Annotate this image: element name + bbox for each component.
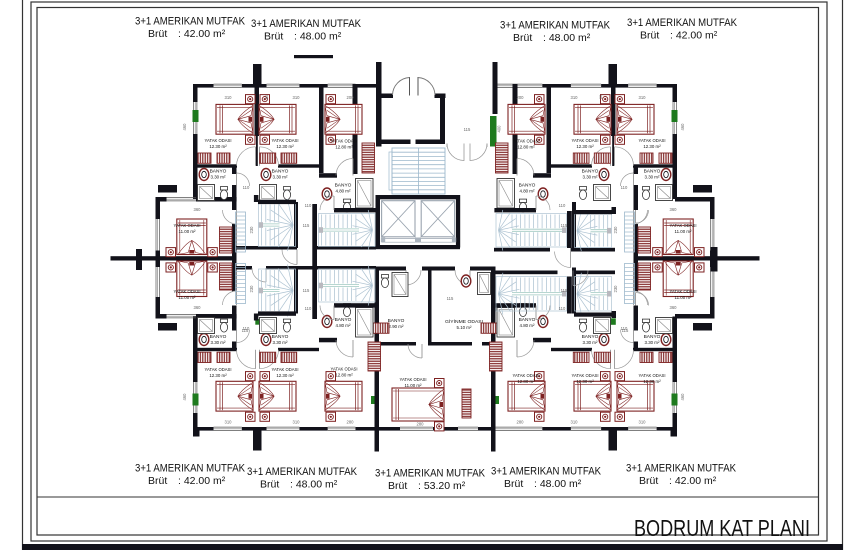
svg-text:12.80 m²: 12.80 m² — [517, 379, 535, 384]
svg-text:2.90 m²: 2.90 m² — [389, 324, 404, 329]
svg-text:110: 110 — [559, 306, 566, 311]
svg-text:11.00 m²: 11.00 m² — [178, 295, 196, 300]
svg-text:Brüt: Brüt — [148, 475, 167, 487]
svg-text:12.30 m²: 12.30 m² — [209, 373, 227, 378]
svg-text:12.30 m²: 12.30 m² — [643, 144, 661, 149]
svg-text:4.80 m²: 4.80 m² — [520, 323, 535, 328]
svg-text:310: 310 — [571, 420, 579, 425]
svg-text:GİYİNME ODASI: GİYİNME ODASI — [445, 318, 483, 325]
svg-text:12.30 m²: 12.30 m² — [209, 144, 227, 149]
svg-text:BODRUM KAT PLANI: BODRUM KAT PLANI — [634, 515, 810, 541]
svg-text:3+1 AMERIKAN MUTFAK: 3+1 AMERIKAN MUTFAK — [491, 466, 602, 478]
svg-text:115: 115 — [242, 328, 249, 333]
svg-text:4.80 m²: 4.80 m² — [336, 323, 351, 328]
svg-text:3+1 AMERIKAN MUTFAK: 3+1 AMERIKAN MUTFAK — [135, 463, 246, 475]
svg-text:115: 115 — [464, 127, 471, 132]
svg-text:3+1 AMERIKAN MUTFAK: 3+1 AMERIKAN MUTFAK — [135, 16, 246, 28]
svg-text:Brüt: Brüt — [513, 32, 532, 44]
svg-text:3+1 AMERIKAN MUTFAK: 3+1 AMERIKAN MUTFAK — [500, 20, 611, 32]
svg-text:3+1 AMERIKAN MUTFAK: 3+1 AMERIKAN MUTFAK — [247, 466, 358, 478]
svg-text:12.80 m²: 12.80 m² — [335, 145, 353, 150]
svg-text:280: 280 — [347, 420, 355, 425]
svg-text:310: 310 — [639, 95, 647, 100]
svg-text:360: 360 — [670, 207, 678, 212]
svg-text:: 53.20 m²: : 53.20 m² — [418, 480, 466, 492]
svg-text:115: 115 — [561, 288, 568, 293]
svg-text:400: 400 — [497, 125, 502, 133]
svg-text:Brüt: Brüt — [639, 475, 658, 487]
svg-text:3.30 m²: 3.30 m² — [273, 340, 288, 345]
svg-text:: 48.00 m²: : 48.00 m² — [290, 479, 338, 491]
svg-text:200: 200 — [517, 95, 525, 100]
svg-text:360: 360 — [194, 207, 202, 212]
svg-text:115: 115 — [622, 328, 629, 333]
svg-text:11.00 m²: 11.00 m² — [178, 229, 196, 234]
svg-text:11.00 m²: 11.00 m² — [674, 295, 692, 300]
svg-text:Brüt: Brüt — [504, 478, 523, 490]
svg-text:Brüt: Brüt — [388, 480, 407, 492]
svg-text:: 42.00 m²: : 42.00 m² — [178, 28, 226, 40]
svg-text:11.00 m²: 11.00 m² — [674, 229, 692, 234]
svg-text:3.30 m²: 3.30 m² — [273, 175, 288, 180]
svg-text:200: 200 — [347, 95, 355, 100]
svg-text:5.10 m²: 5.10 m² — [457, 325, 472, 330]
svg-text:360: 360 — [194, 305, 202, 310]
svg-text:12.30 m²: 12.30 m² — [643, 379, 661, 384]
svg-text:3+1 AMERIKAN MUTFAK: 3+1 AMERIKAN MUTFAK — [627, 17, 738, 29]
svg-text:310: 310 — [571, 95, 579, 100]
svg-text:110: 110 — [305, 203, 312, 208]
svg-text:12.80 m²: 12.80 m² — [517, 145, 535, 150]
svg-text:3.30 m²: 3.30 m² — [645, 340, 660, 345]
svg-text:310: 310 — [293, 420, 301, 425]
svg-text:: 48.00 m²: : 48.00 m² — [294, 31, 342, 43]
svg-text:3.30 m²: 3.30 m² — [583, 175, 598, 180]
svg-text:280: 280 — [417, 422, 425, 427]
svg-text:Brüt: Brüt — [260, 479, 279, 491]
svg-text:115: 115 — [561, 223, 568, 228]
svg-text:60: 60 — [265, 95, 269, 99]
svg-text:230: 230 — [613, 226, 618, 234]
svg-text:280: 280 — [517, 420, 525, 425]
svg-text:110: 110 — [305, 306, 312, 311]
svg-text:4.80 m²: 4.80 m² — [336, 189, 351, 194]
svg-text:115: 115 — [303, 288, 310, 293]
svg-text:460: 460 — [182, 123, 187, 131]
svg-text:Brüt: Brüt — [640, 30, 659, 42]
svg-text:230: 230 — [249, 285, 254, 293]
svg-text:310: 310 — [225, 95, 233, 100]
svg-text:460: 460 — [680, 393, 685, 401]
svg-text:310: 310 — [225, 420, 233, 425]
svg-text:3.30 m²: 3.30 m² — [645, 175, 660, 180]
svg-text:460: 460 — [182, 393, 187, 401]
svg-text:3.30 m²: 3.30 m² — [583, 340, 598, 345]
svg-text:3+1 AMERIKAN MUTFAK: 3+1 AMERIKAN MUTFAK — [375, 468, 486, 480]
svg-text:3+1 AMERIKAN MUTFAK: 3+1 AMERIKAN MUTFAK — [251, 18, 362, 30]
svg-text:110: 110 — [621, 185, 628, 190]
svg-text:310: 310 — [639, 420, 647, 425]
svg-text:12.30 m²: 12.30 m² — [576, 379, 594, 384]
svg-text:: 42.00 m²: : 42.00 m² — [669, 475, 717, 487]
svg-text:3+1 AMERIKAN MUTFAK: 3+1 AMERIKAN MUTFAK — [626, 463, 737, 475]
svg-text:11.00 m²: 11.00 m² — [404, 383, 422, 388]
svg-text:310: 310 — [293, 95, 301, 100]
svg-text:3.30 m²: 3.30 m² — [211, 175, 226, 180]
svg-text:Brüt: Brüt — [148, 28, 167, 40]
svg-text:12.30 m²: 12.30 m² — [276, 373, 294, 378]
svg-text:230: 230 — [249, 226, 254, 234]
svg-text:: 48.00 m²: : 48.00 m² — [543, 32, 591, 44]
svg-text:110: 110 — [559, 203, 566, 208]
svg-text:115: 115 — [303, 223, 310, 228]
svg-text:115: 115 — [447, 296, 454, 301]
svg-text:: 42.00 m²: : 42.00 m² — [670, 30, 718, 42]
svg-text:12.30 m²: 12.30 m² — [576, 144, 594, 149]
svg-text:Brüt: Brüt — [264, 31, 283, 43]
svg-text:12.30 m²: 12.30 m² — [276, 144, 294, 149]
svg-text:460: 460 — [680, 123, 685, 131]
svg-text:3.30 m²: 3.30 m² — [211, 340, 226, 345]
svg-text:: 48.00 m²: : 48.00 m² — [534, 478, 582, 490]
svg-text:360: 360 — [670, 305, 678, 310]
svg-text:: 42.00 m²: : 42.00 m² — [178, 475, 226, 487]
svg-text:230: 230 — [613, 285, 618, 293]
svg-text:4.80 m²: 4.80 m² — [520, 189, 535, 194]
svg-text:110: 110 — [243, 185, 250, 190]
svg-text:60: 60 — [599, 95, 603, 99]
svg-text:12.80 m²: 12.80 m² — [335, 373, 353, 378]
